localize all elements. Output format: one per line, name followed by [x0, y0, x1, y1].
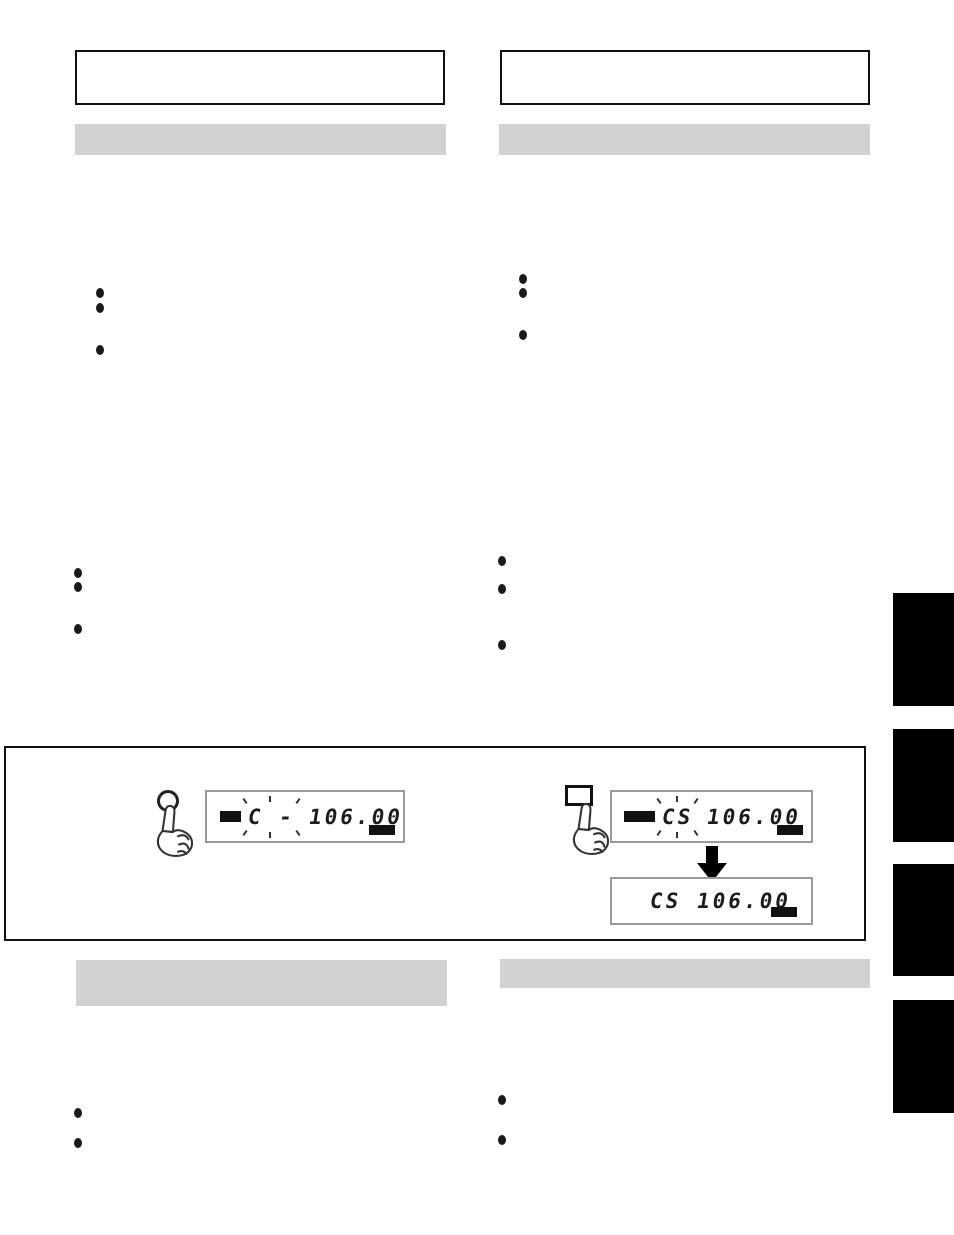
bullet	[74, 568, 82, 578]
press-hand-icon	[152, 804, 200, 858]
section-bar-bottom-right	[500, 959, 870, 988]
lcd-display-right-after: CS 106.00	[610, 877, 813, 925]
bullet	[96, 345, 104, 355]
title-box-right	[500, 50, 870, 105]
lcd-display-right-before: CS 106.00	[610, 790, 813, 843]
instruction-panel: C - 106.00 CS 106.00	[4, 746, 866, 941]
section-bar-bottom-left	[76, 960, 447, 1006]
lcd-segment-right	[777, 825, 803, 835]
lcd-display-left: C - 106.00	[205, 790, 405, 843]
side-tab-2	[893, 729, 954, 842]
bullet	[96, 303, 104, 313]
side-tab-1	[893, 593, 954, 706]
bullet	[74, 1108, 82, 1118]
lcd-blink-label: CS	[662, 805, 693, 829]
bullet	[498, 1135, 506, 1145]
lcd-segment-right	[369, 825, 395, 835]
manual-page: C - 106.00 CS 106.00	[0, 0, 954, 1235]
title-box-left	[75, 50, 445, 105]
lcd-label: CS	[648, 889, 683, 913]
press-hand-icon	[568, 802, 616, 856]
bullet	[74, 582, 82, 592]
bullet	[498, 640, 506, 650]
section-bar-top-left	[75, 124, 446, 155]
lcd-segment-left	[220, 811, 241, 822]
bullet	[498, 584, 506, 594]
lcd-blink-label: C -	[248, 805, 295, 829]
side-tab-3	[893, 864, 954, 976]
bullet	[74, 624, 82, 634]
bullet	[74, 1138, 82, 1148]
bullet	[519, 330, 527, 340]
section-bar-top-right	[499, 124, 870, 155]
bullet	[519, 274, 527, 284]
bullet	[519, 288, 527, 298]
bullet	[96, 288, 104, 298]
lcd-segment-left	[624, 811, 655, 822]
side-tab-4	[893, 1000, 954, 1113]
lcd-segment-right	[771, 907, 797, 917]
bullet	[498, 1095, 506, 1105]
bullet	[498, 556, 506, 566]
